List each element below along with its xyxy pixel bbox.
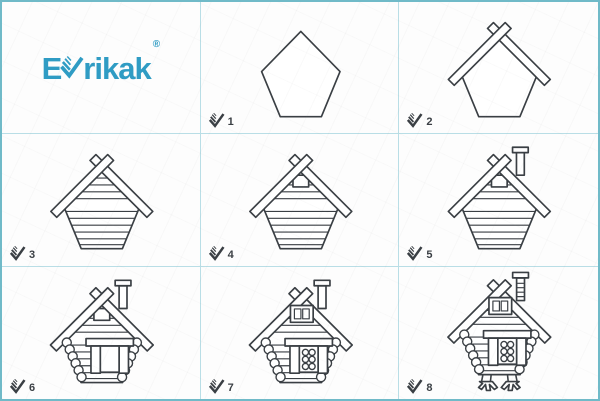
step-number: 4 [228,250,234,261]
step-cell-7: 7 [201,267,400,399]
step-cell-1: 1 [201,2,400,134]
check-icon [406,246,423,261]
step-number: 5 [426,250,432,261]
step-cell-8: 8 [399,267,598,399]
step-number: 6 [29,383,35,394]
check-icon [9,379,26,394]
step-cell-4: 4 [201,134,400,266]
check-icon [9,246,26,261]
step-number: 7 [228,383,234,394]
step-cell-3: 3 [2,134,201,266]
step-badge: 1 [208,113,234,128]
step-badge: 4 [208,246,234,261]
step-number: 1 [228,117,234,128]
step-badge: 7 [208,379,234,394]
check-icon [406,379,423,394]
step-number: 2 [426,117,432,128]
step-cell-5: 5 [399,134,598,266]
step-badge: 2 [406,113,432,128]
step-number: 3 [29,250,35,261]
check-icon [208,379,225,394]
logo-cell: E rikak ® [2,2,201,134]
check-icon [406,113,423,128]
tutorial-image: E rikak ® 1 [0,0,600,401]
step-cell-2: 2 [399,2,598,134]
logo-checkmark-v-icon [59,54,84,81]
check-icon [208,246,225,261]
tutorial-grid: E rikak ® 1 [2,2,598,399]
step-badge: 8 [406,379,432,394]
step-badge: 3 [9,246,35,261]
brand-logo: E rikak ® [42,54,160,82]
step-badge: 6 [9,379,35,394]
step-badge: 5 [406,246,432,261]
step-cell-6: 6 [2,267,201,399]
check-icon [208,113,225,128]
step-number: 8 [426,383,432,394]
logo-text-suffix: rikak [83,57,150,82]
registered-mark: ® [153,40,160,50]
